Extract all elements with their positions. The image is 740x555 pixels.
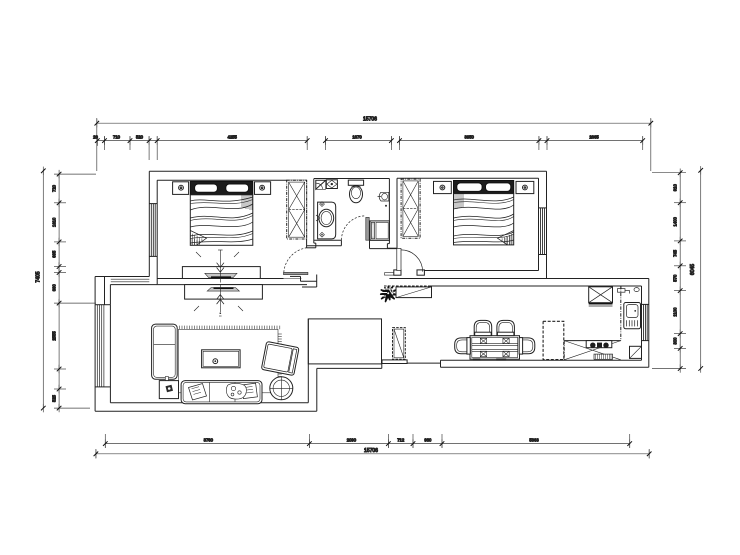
svg-text:4255: 4255 <box>228 135 238 140</box>
svg-text:660: 660 <box>52 284 57 292</box>
svg-text:910: 910 <box>673 184 678 192</box>
svg-text:1610: 1610 <box>52 217 57 227</box>
svg-text:520: 520 <box>136 135 144 140</box>
svg-text:6045: 6045 <box>690 264 696 275</box>
svg-text:20: 20 <box>93 135 98 140</box>
svg-text:1670: 1670 <box>352 135 362 140</box>
svg-text:2665: 2665 <box>589 135 599 140</box>
svg-text:15706: 15706 <box>364 448 378 454</box>
svg-text:300: 300 <box>673 337 678 345</box>
svg-text:2090: 2090 <box>347 438 357 443</box>
svg-text:695: 695 <box>52 250 57 258</box>
svg-text:525: 525 <box>52 394 57 402</box>
svg-text:980: 980 <box>424 438 432 443</box>
svg-text:710: 710 <box>113 135 121 140</box>
svg-text:3950: 3950 <box>465 135 475 140</box>
svg-text:1100: 1100 <box>673 307 678 317</box>
svg-text:3760: 3760 <box>204 438 214 443</box>
svg-text:745: 745 <box>673 249 678 257</box>
svg-text:712: 712 <box>397 438 405 443</box>
svg-text:2555: 2555 <box>52 331 57 341</box>
svg-text:7405: 7405 <box>36 271 42 282</box>
svg-text:1400: 1400 <box>673 216 678 226</box>
svg-text:15706: 15706 <box>363 117 377 123</box>
svg-text:570: 570 <box>673 274 678 282</box>
svg-text:720: 720 <box>52 184 57 192</box>
svg-text:5363: 5363 <box>529 438 539 443</box>
